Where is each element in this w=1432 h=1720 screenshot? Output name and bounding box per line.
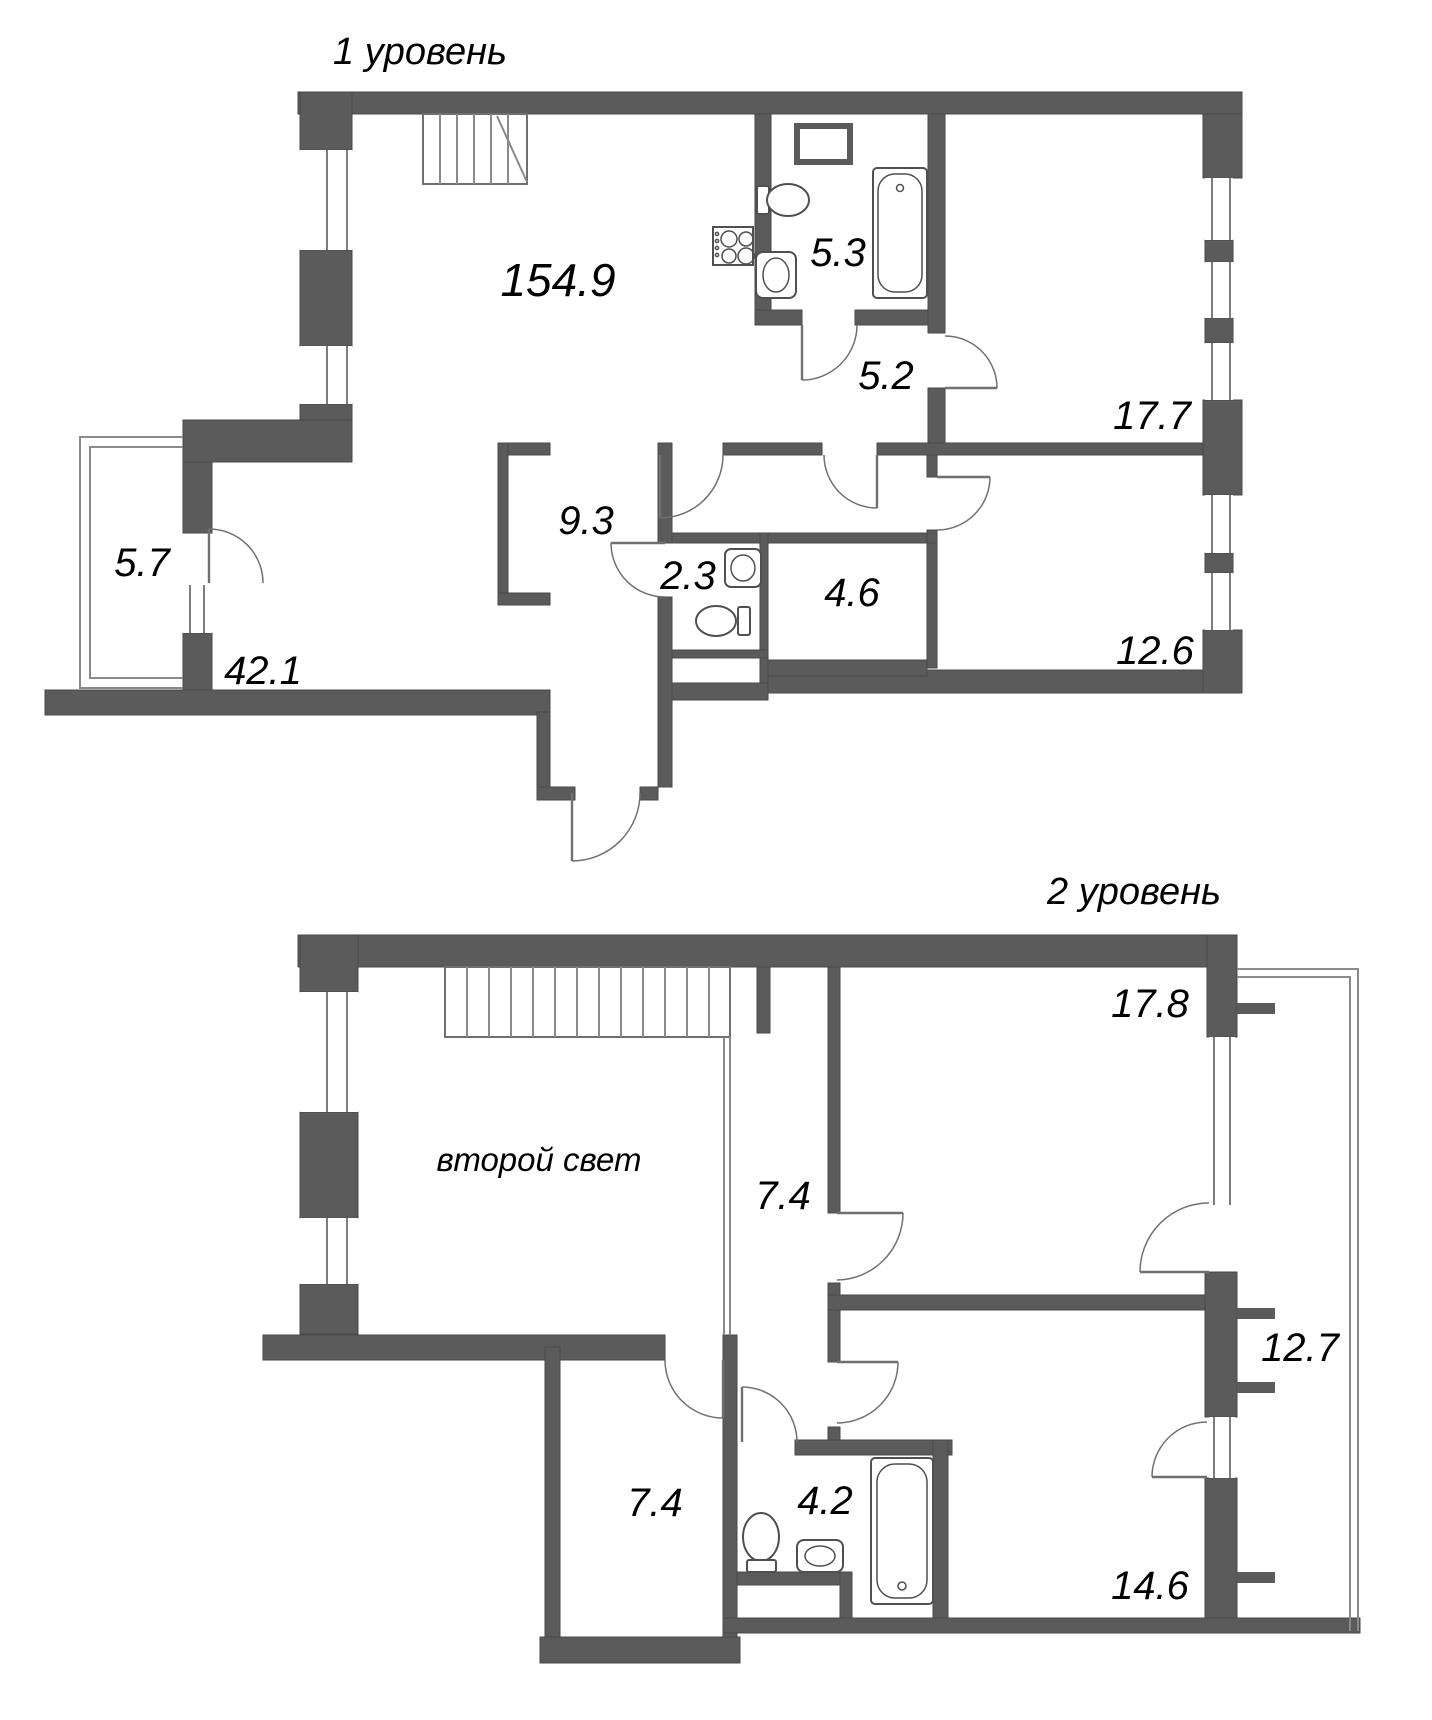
level-1-plan: 1 уровень 154.9 5.3 5.2 17.7 9.3 2.3 4.6…: [45, 31, 1242, 861]
room-label-bathroom-2: 4.2: [797, 1479, 853, 1523]
room-label-living-lower: 42.1: [224, 649, 302, 693]
room-label-corridor: 9.3: [558, 499, 614, 543]
room-label-bedroom-3: 17.8: [1111, 982, 1190, 1026]
room-label-living: 154.9: [500, 254, 615, 306]
room-label-bedroom-1: 17.7: [1113, 394, 1193, 438]
room-label-bedroom-2: 12.6: [1116, 629, 1195, 673]
level-2-plan: 2 уровень 17.8 второй свет 7.4 12.7 7.4 …: [263, 871, 1360, 1663]
bathtub-icon-bath2: [871, 1458, 933, 1604]
room-label-void: второй свет: [436, 1141, 641, 1178]
toilet-icon-bath2: [743, 1513, 779, 1572]
sink-icon-wc: [725, 549, 761, 587]
level-2-windows: [300, 992, 1235, 1478]
room-label-balcony-upper: 12.7: [1261, 1326, 1341, 1370]
level-2-balcony-outline: [1237, 969, 1358, 1631]
room-label-balcony: 5.7: [114, 541, 171, 585]
room-label-corridor-upper: 7.4: [755, 1174, 811, 1218]
level-1-walls: [45, 92, 1242, 800]
room-label-bedroom-4: 14.6: [1111, 1564, 1190, 1608]
floor-plan-image: 1 уровень 154.9 5.3 5.2 17.7 9.3 2.3 4.6…: [0, 0, 1432, 1720]
level-2-title: 2 уровень: [1046, 871, 1221, 913]
sink-icon-bath2: [797, 1540, 843, 1572]
room-label-bathroom: 5.3: [810, 231, 866, 275]
bathtub-icon-bath1: [873, 168, 927, 298]
toilet-icon-wc: [696, 606, 750, 636]
stove-icon: [713, 227, 754, 265]
room-label-room-lower-left: 7.4: [627, 1481, 683, 1525]
room-label-hall: 5.2: [858, 354, 914, 398]
level-1-staircase: [423, 114, 527, 184]
level-1-title: 1 уровень: [333, 31, 507, 73]
level-2-doors: [665, 1203, 1209, 1477]
shaft-niche: [797, 126, 850, 162]
sink-icon-bath1: [756, 252, 796, 298]
room-label-storage: 4.6: [824, 571, 880, 615]
toilet-icon-bath1: [757, 184, 809, 216]
room-label-wc: 2.3: [659, 554, 716, 598]
